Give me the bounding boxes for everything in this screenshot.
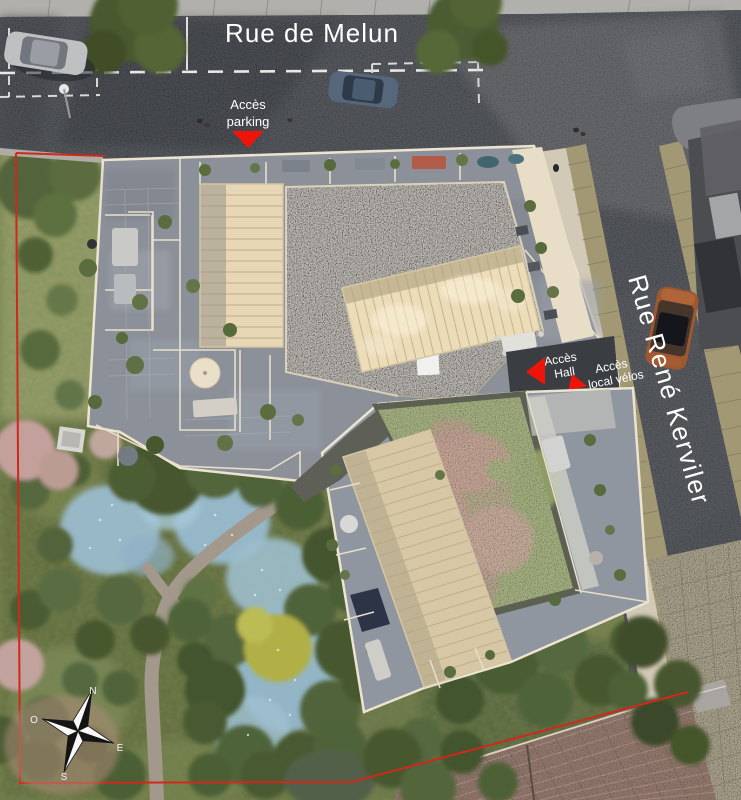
svg-text:O: O xyxy=(30,715,38,726)
svg-text:parking: parking xyxy=(227,114,270,129)
svg-text:N: N xyxy=(89,686,96,697)
svg-text:Rue de Melun: Rue de Melun xyxy=(225,18,399,48)
svg-text:S: S xyxy=(61,772,68,783)
svg-text:Accès: Accès xyxy=(230,97,266,112)
svg-text:E: E xyxy=(117,743,124,754)
